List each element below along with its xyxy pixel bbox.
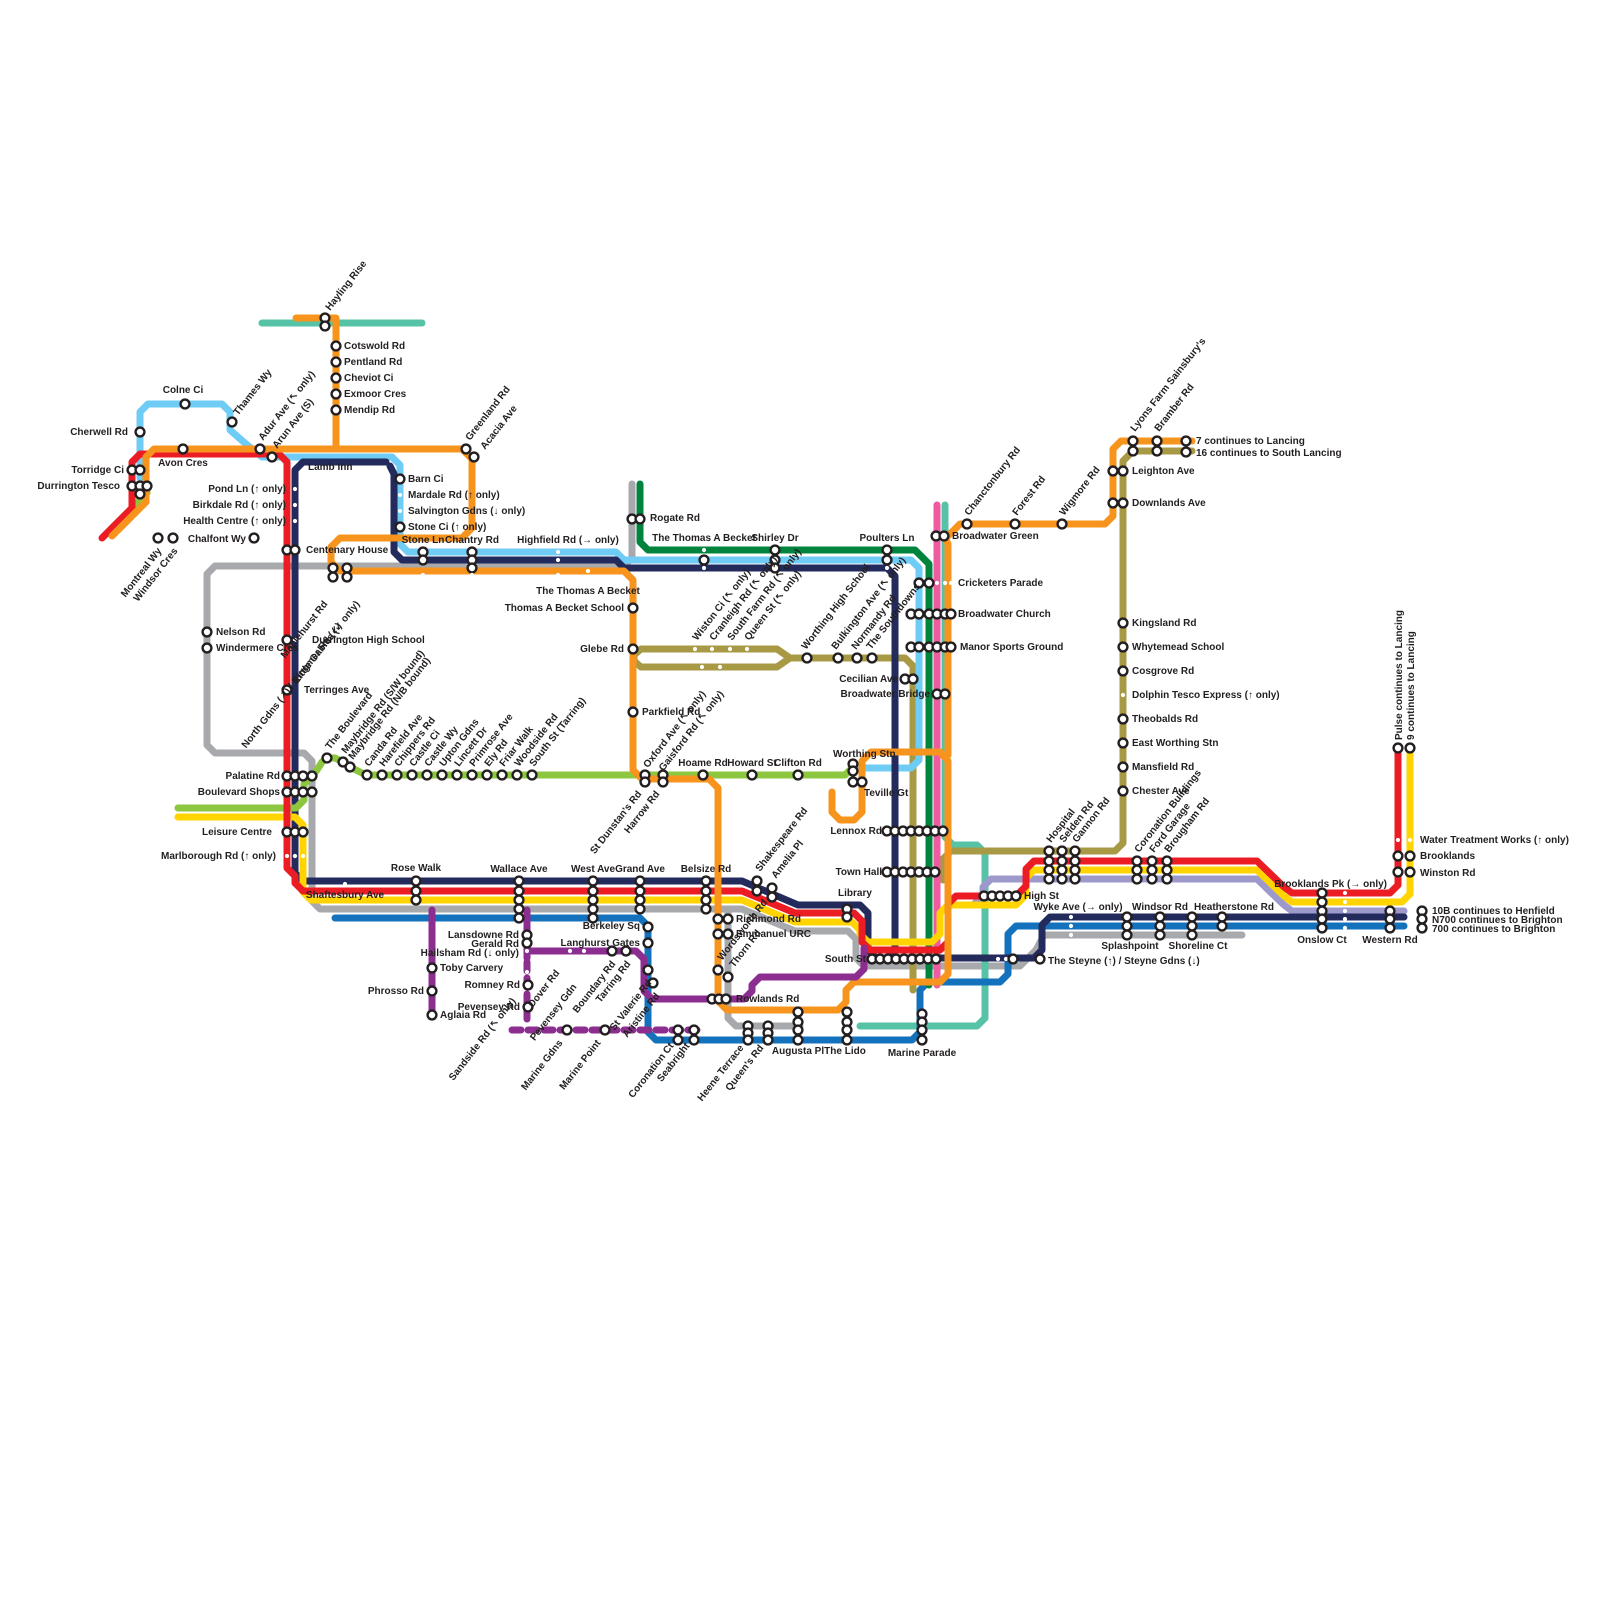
- station-dot-stone-ci-only: [396, 523, 405, 532]
- minor-stop-dot-marlborough-rd-only: [285, 854, 289, 858]
- minor-stop-dot-sandside-rd-only: [525, 970, 529, 974]
- station-dot-montreal-wy: [154, 534, 163, 543]
- minor-stop-dot-pond-ln-only: [293, 487, 297, 491]
- station-dot-teville-gt: [849, 778, 858, 787]
- station-dot-wallace-ave: [515, 914, 524, 923]
- station-dot-shoreline-ct: [1188, 922, 1197, 931]
- minor-stop-dot-brooklands-pk-only: [1343, 917, 1347, 921]
- minor-stop-dot-wiston-ci-only: [693, 647, 697, 651]
- station-dot-hospital: [1045, 857, 1054, 866]
- station-dot-bramber-rd: [1153, 437, 1162, 446]
- station-dot-south-st-tarring: [528, 771, 537, 780]
- minor-stop-dot-the-thomas-a-becket: [702, 548, 706, 552]
- station-dot-hayling-rise: [321, 322, 330, 331]
- station-label-terringes-ave: Terringes Ave: [304, 685, 370, 696]
- station-dot-mansfield-rd: [1119, 763, 1128, 772]
- station-label-chantry-rd: Chantry Rd: [445, 535, 499, 546]
- station-label-broadwater-church: Broadwater Church: [958, 609, 1051, 620]
- minor-stop-dot-chantry-rd: [470, 573, 474, 577]
- station-label-theobalds-rd: Theobalds Rd: [1132, 714, 1198, 725]
- station-label-centenary-house: Centenary House: [306, 545, 389, 556]
- station-dot-broadwater-bridge: [941, 690, 950, 699]
- station-dot-glebe-rd: [629, 645, 638, 654]
- station-label-stone-ln: Stone Ln: [402, 535, 445, 546]
- station-dot-richmond-rd: [714, 915, 723, 924]
- station-label-clifton-rd: Clifton Rd: [774, 758, 822, 769]
- station-dot-brooklands: [1394, 852, 1403, 861]
- station-dot-rogate-rd: [636, 515, 645, 524]
- station-dot-maybridge-rd-n-b-bound: [346, 763, 355, 772]
- station-dot-coronation-buildings: [1133, 866, 1142, 875]
- station-dot-rose-walk: [412, 887, 421, 896]
- station-dot-acacia-ave: [470, 453, 479, 462]
- station-dot-gannon-rd: [1071, 857, 1080, 866]
- station-label-west-ave: West Ave: [571, 864, 616, 875]
- minor-stop-dot-health-centre-only: [293, 519, 297, 523]
- minor-stop-dot-marlborough-rd-only: [293, 854, 297, 858]
- station-dot-splashpoint: [1123, 913, 1132, 922]
- station-label-grand-ave: Grand Ave: [615, 864, 665, 875]
- station-label-brooklands: Brooklands: [1420, 851, 1475, 862]
- station-label-broadwater-green: Broadwater Green: [952, 531, 1039, 542]
- minor-stop-dot-brooklands-pk-only: [1343, 909, 1347, 913]
- minor-stop-dot-south-farm-rd-only: [728, 647, 732, 651]
- station-label-rogate-rd: Rogate Rd: [650, 513, 700, 524]
- station-label-splashpoint: Splashpoint: [1101, 941, 1159, 952]
- station-dot-east-worthing-stn: [1119, 739, 1128, 748]
- station-dot-colne-ci: [181, 400, 190, 409]
- station-dot-nelson-rd: [203, 628, 212, 637]
- station-dot-st-dunstan-s-rd: [641, 778, 650, 787]
- station-dot-emmanuel-urc: [714, 930, 723, 939]
- station-label-chalfont-wy: Chalfont Wy: [188, 534, 247, 545]
- station-dot-high-st: [1012, 892, 1021, 901]
- station-dot-the-lido: [843, 1008, 852, 1017]
- station-dot-castle-wy: [423, 771, 432, 780]
- station-dot-amelia-pl: [768, 893, 777, 902]
- station-dot-cherwell-rd: [136, 428, 145, 437]
- station-label-16-continues-to-south-lancing: 16 continues to South Lancing: [1196, 448, 1342, 459]
- station-label-pulse-continues-to-lancing: Pulse continues to Lancing: [1394, 610, 1405, 740]
- station-dot-belsize-rd: [702, 877, 711, 886]
- station-label-langhurst-gates: Langhurst Gates: [561, 938, 641, 949]
- station-dot-thomas-a-becket-school: [629, 604, 638, 613]
- station-dot-coronation-buildings: [1133, 857, 1142, 866]
- station-dot-chantry-rd: [468, 564, 477, 573]
- station-label-avon-cres: Avon Cres: [158, 458, 208, 469]
- station-label-leighton-ave: Leighton Ave: [1132, 466, 1195, 477]
- station-label-south-st: South St: [825, 954, 867, 965]
- station-label-augusta-pl: Augusta Pl: [772, 1046, 824, 1057]
- station-dot-castle-ci: [408, 771, 417, 780]
- station-dot-windsor-cres: [169, 534, 178, 543]
- station-dot-south-st: [932, 955, 941, 964]
- station-dot-palatine-rd: [299, 772, 308, 781]
- station-dot-grand-ave: [636, 905, 645, 914]
- station-dot-windsor-rd: [1156, 931, 1165, 940]
- map-background: [0, 0, 1600, 1600]
- station-dot-centenary-house: [291, 546, 300, 555]
- station-label-the-thomas-a-becket: The Thomas A Becket: [536, 586, 640, 597]
- station-dot-manor-sports-ground: [947, 643, 956, 652]
- minor-stop-dot-cranleigh-rd-only: [710, 647, 714, 651]
- station-label-belsize-rd: Belsize Rd: [681, 864, 732, 875]
- minor-stop-dot-water-treatment-works-only: [1396, 838, 1400, 842]
- station-dot-bramber-rd: [1153, 447, 1162, 456]
- station-dot-onslow-ct: [1318, 924, 1327, 933]
- station-label-poulters-ln: Poulters Ln: [859, 533, 914, 544]
- station-dot-chalfont-wy: [250, 534, 259, 543]
- station-dot-friar-walk: [498, 771, 507, 780]
- station-label-marine-parade: Marine Parade: [888, 1048, 957, 1059]
- station-dot-bulkington-ave-only: [834, 654, 843, 663]
- station-label-durrington-high-school: Durrington High School: [312, 635, 425, 646]
- minor-stop-dot-water-treatment-works-only: [1408, 838, 1412, 842]
- minor-stop-dot-marlborough-rd-only: [301, 854, 305, 858]
- station-dot-brooklands: [1406, 852, 1415, 861]
- station-label-palatine-rd: Palatine Rd: [226, 771, 280, 782]
- minor-stop-dot-brooklands-pk-only: [1343, 926, 1347, 930]
- station-dot-harrow-rd: [659, 778, 668, 787]
- station-label-lamb-inn: Lamb Inn: [308, 462, 352, 473]
- station-dot-berkeley-sq: [644, 923, 653, 932]
- station-dot-winston-rd: [1394, 868, 1403, 877]
- station-dot-9-continues-to-lancing: [1406, 744, 1415, 753]
- station-label-marlborough-rd-only: Marlborough Rd (↑ only): [161, 851, 276, 862]
- minor-stop-dot-wyke-ave-only: [1069, 924, 1073, 928]
- station-dot-lennox-rd: [939, 827, 948, 836]
- station-dot-broadwater-church: [947, 610, 956, 619]
- station-label-water-treatment-works-only: Water Treatment Works (↑ only): [1420, 835, 1569, 846]
- station-label-berkeley-sq: Berkeley Sq: [583, 921, 640, 932]
- station-dot-rose-walk: [412, 896, 421, 905]
- station-label-teville-gt: Teville Gt: [864, 788, 909, 799]
- station-dot-marine-parade: [918, 1026, 927, 1035]
- station-dot-clifton-rd: [794, 771, 803, 780]
- station-dot-onslow-ct: [1318, 898, 1327, 907]
- station-label-east-worthing-stn: East Worthing Stn: [1132, 738, 1218, 749]
- station-dot-maplehurst-rd: [329, 573, 338, 582]
- station-label-leisure-centre: Leisure Centre: [202, 827, 272, 838]
- station-dot-brougham-rd: [1163, 866, 1172, 875]
- station-dot-the-boulevard: [323, 754, 332, 763]
- minor-stop-dot-stone-ln: [421, 573, 425, 577]
- station-dot-belsize-rd: [702, 896, 711, 905]
- station-label-the-thomas-a-becket: The Thomas A Becket: [652, 533, 756, 544]
- station-label-onslow-ct: Onslow Ct: [1297, 935, 1347, 946]
- station-dot-700-continues-to-brighton: [1418, 924, 1427, 933]
- station-label-mendip-rd: Mendip Rd: [344, 405, 395, 416]
- station-dot-downlands-ave: [1109, 499, 1118, 508]
- station-label-cherwell-rd: Cherwell Rd: [70, 427, 128, 438]
- station-dot-ely-rd: [483, 771, 492, 780]
- station-dot-richmond-rd: [724, 915, 733, 924]
- station-dot-romney-rd: [524, 981, 533, 990]
- station-label-stone-ci-only: Stone Ci (↑ only): [408, 522, 486, 533]
- station-label-highfield-rd-only: Highfield Rd (→ only): [517, 535, 619, 546]
- station-dot-wallace-ave: [515, 887, 524, 896]
- station-label-high-st: High St: [1024, 891, 1060, 902]
- station-label-wyke-ave-only: Wyke Ave (→ only): [1033, 902, 1122, 913]
- station-dot-gerald-rd: [523, 939, 532, 948]
- station-dot-lyons-farm-sainsbury-s: [1129, 447, 1138, 456]
- minor-stop-dot-highfield-rd-only: [556, 573, 560, 577]
- station-dot-chanctonbury-rd: [963, 520, 972, 529]
- station-dot-grand-ave: [636, 896, 645, 905]
- station-dot-durrington-tesco: [143, 482, 152, 491]
- station-dot-shakespeare-rd: [753, 877, 762, 886]
- station-dot-greenland-rd: [462, 445, 471, 454]
- station-label-winston-rd: Winston Rd: [1420, 868, 1475, 879]
- station-dot-seabright: [690, 1026, 699, 1035]
- minor-stop-dot-wyke-ave-only: [1069, 915, 1073, 919]
- station-dot-lyons-farm-sainsbury-s: [1129, 437, 1138, 446]
- station-label-broadwater-bridge: Broadwater Bridge: [841, 689, 931, 700]
- station-dot-little-gables-only: [343, 573, 352, 582]
- station-dot-west-ave: [589, 877, 598, 886]
- station-dot-gannon-rd: [1071, 875, 1080, 884]
- station-dot-phrosso-rd: [428, 987, 437, 996]
- station-dot-theobalds-rd: [1119, 715, 1128, 724]
- station-label-dolphin-tesco-express-only: Dolphin Tesco Express (↑ only): [1132, 690, 1280, 701]
- station-label-700-continues-to-brighton: 700 continues to Brighton: [1432, 924, 1555, 935]
- station-dot-augusta-pl: [794, 1026, 803, 1035]
- station-dot-wigmore-rd: [1058, 520, 1067, 529]
- station-label-salvington-gdns-only: Salvington Gdns (↓ only): [408, 506, 525, 517]
- station-dot-brougham-rd: [1163, 875, 1172, 884]
- station-dot-wallace-ave: [515, 896, 524, 905]
- station-label-shaftesbury-ave: Shaftesbury Ave: [306, 890, 385, 901]
- station-dot-torridge-ci: [136, 466, 145, 475]
- station-dot-cosgrove-rd: [1119, 667, 1128, 676]
- station-label-mansfield-rd: Mansfield Rd: [1132, 762, 1194, 773]
- station-dot-windsor-rd: [1156, 922, 1165, 931]
- station-dot-downlands-ave: [1119, 499, 1128, 508]
- minor-stop-dot-queen-st-only: [745, 647, 749, 651]
- minor-stop-dot-dover-rd: [568, 949, 572, 953]
- minor-stop-dot-wyke-ave-only: [1069, 933, 1073, 937]
- station-label-romney-rd: Romney Rd: [464, 980, 520, 991]
- minor-stop-dot-shaftesbury-ave: [343, 882, 347, 886]
- station-dot-st-valerie-rd: [644, 966, 653, 975]
- station-dot-leisure-centre: [299, 828, 308, 837]
- station-label-cheviot-ci: Cheviot Ci: [344, 373, 394, 384]
- station-dot-queen-s-rd: [764, 1036, 773, 1045]
- station-dot-worthing-stn: [849, 767, 858, 776]
- minor-stop-dot-oxford-ave-only: [700, 665, 704, 669]
- station-dot-leighton-ave: [1119, 467, 1128, 476]
- station-dot-wordsworth-rd: [714, 966, 723, 975]
- station-label-wallace-ave: Wallace Ave: [490, 864, 548, 875]
- station-dot-worthing-high-school: [803, 654, 812, 663]
- station-dot-chippers-rd: [393, 771, 402, 780]
- station-dot-boulevard-shops: [299, 788, 308, 797]
- station-label-colne-ci: Colne Ci: [163, 385, 204, 396]
- station-dot-shoreline-ct: [1188, 931, 1197, 940]
- station-dot-palatine-rd: [308, 772, 317, 781]
- station-dot-marine-gdns: [563, 1026, 572, 1035]
- station-label-shoreline-ct: Shoreline Ct: [1169, 941, 1229, 952]
- station-dot-boulevard-shops: [308, 788, 317, 797]
- minor-stop-dot-cricketers-parade: [935, 581, 939, 585]
- station-label-windermere-cres: Windermere Cres: [216, 643, 299, 654]
- station-dot-the-thomas-a-becket: [700, 556, 709, 565]
- station-dot-western-rd: [1386, 915, 1395, 924]
- station-label-hoame-rd: Hoame Rd: [678, 758, 727, 769]
- station-label-phrosso-rd: Phrosso Rd: [368, 986, 424, 997]
- station-dot-parkfield-rd: [629, 708, 638, 717]
- station-dot-ford-garage: [1148, 857, 1157, 866]
- station-dot-avon-cres: [179, 445, 188, 454]
- station-dot-toby-carvery: [428, 964, 437, 973]
- station-dot-grand-ave: [636, 887, 645, 896]
- station-label-birkdale-rd-only: Birkdale Rd (↑ only): [193, 500, 286, 511]
- station-dot-splashpoint: [1123, 922, 1132, 931]
- station-dot-cricketers-parade: [925, 579, 934, 588]
- station-dot-heatherstone-rd: [1218, 913, 1227, 922]
- station-dot-heene-terrace: [744, 1036, 753, 1045]
- station-dot-seabright: [690, 1036, 699, 1045]
- station-label-glebe-rd: Glebe Rd: [580, 644, 624, 655]
- station-dot-aglaia-rd: [428, 1011, 437, 1020]
- station-dot-west-ave: [589, 887, 598, 896]
- minor-stop-dot-highfield-rd-only: [556, 558, 560, 562]
- station-dot-onslow-ct: [1318, 915, 1327, 924]
- transit-map-page: Hayling RiseCotswold RdPentland RdChevio…: [0, 0, 1600, 1600]
- station-label-cosgrove-rd: Cosgrove Rd: [1132, 666, 1194, 677]
- minor-stop-dot-hailsham-rd-only: [525, 949, 529, 953]
- station-dot-the-southdowns: [868, 654, 877, 663]
- station-dot-rowlands-rd: [722, 995, 731, 1004]
- station-dot-marine-parade: [918, 1036, 927, 1045]
- station-dot-chester-ave: [1119, 787, 1128, 796]
- station-label-the-steyne-steyne-gdns: The Steyne (↑) / Steyne Gdns (↓): [1048, 956, 1200, 967]
- station-dot-selden-rd: [1058, 875, 1067, 884]
- station-dot-langhurst-gates: [644, 939, 653, 948]
- station-dot-belsize-rd: [702, 887, 711, 896]
- station-label-durrington-tesco: Durrington Tesco: [37, 481, 120, 492]
- station-dot-normandy-rd: [853, 654, 862, 663]
- minor-stop-dot-cricketers-parade: [949, 581, 953, 585]
- station-label-rowlands-rd: Rowlands Rd: [736, 994, 799, 1005]
- station-dot-windsor-rd: [1156, 913, 1165, 922]
- station-dot-woodside-rd: [513, 771, 522, 780]
- station-dot-exmoor-cres: [332, 390, 341, 399]
- station-label-lennox-rd: Lennox Rd: [830, 826, 882, 837]
- station-dot-broadwater-green: [940, 532, 949, 541]
- station-dot-16-continues-to-south-lancing: [1182, 448, 1191, 457]
- station-dot-the-lido: [843, 1036, 852, 1045]
- station-dot-maplehurst-rd: [329, 564, 338, 573]
- station-dot-broadwater-church: [915, 610, 924, 619]
- station-label-barn-ci: Barn Ci: [408, 474, 444, 485]
- station-label-boulevard-shops: Boulevard Shops: [198, 787, 281, 798]
- station-label-manor-sports-ground: Manor Sports Ground: [960, 642, 1063, 653]
- station-dot-west-ave: [589, 905, 598, 914]
- station-dot-durrington-tesco: [136, 490, 145, 499]
- station-dot-ford-garage: [1148, 866, 1157, 875]
- station-label-mardale-rd-only: Mardale Rd (↑ only): [408, 490, 500, 501]
- station-dot-primrose-ave: [468, 771, 477, 780]
- station-dot-cheviot-ci: [332, 374, 341, 383]
- station-dot-hoame-rd: [699, 771, 708, 780]
- station-dot-little-gables-only: [343, 564, 352, 573]
- station-dot-brougham-rd: [1163, 857, 1172, 866]
- station-dot-winston-rd: [1406, 868, 1415, 877]
- station-dot-stone-ln: [419, 556, 428, 565]
- station-dot-harefield-ave: [378, 771, 387, 780]
- station-dot-grand-ave: [636, 877, 645, 886]
- station-label-shirley-dr: Shirley Dr: [751, 533, 798, 544]
- station-label-nelson-rd: Nelson Rd: [216, 627, 265, 638]
- minor-stop-dot-highfield-rd-only: [556, 550, 560, 554]
- station-dot-wallace-ave: [515, 905, 524, 914]
- station-dot-poulters-ln: [883, 556, 892, 565]
- station-dot-forest-rd: [1011, 520, 1020, 529]
- station-dot-splashpoint: [1123, 931, 1132, 940]
- station-label-health-centre-only: Health Centre (↑ only): [183, 516, 286, 527]
- station-label-torridge-ci: Torridge Ci: [71, 465, 124, 476]
- station-label-aglaia-rd: Aglaia Rd: [440, 1010, 486, 1021]
- station-dot-belsize-rd: [702, 905, 711, 914]
- station-dot-gannon-rd: [1071, 847, 1080, 856]
- station-label-pond-ln-only: Pond Ln (↑ only): [208, 484, 286, 495]
- station-dot-pulse-continues-to-lancing: [1394, 744, 1403, 753]
- station-label-library: Library: [838, 888, 872, 899]
- minor-stop-dot-the-thomas-a-becket: [702, 566, 706, 570]
- station-dot-gannon-rd: [1071, 866, 1080, 875]
- station-label-kingsland-rd: Kingsland Rd: [1132, 618, 1196, 629]
- station-dot-howard-st: [748, 771, 757, 780]
- station-dot-coronation-buildings: [1133, 875, 1142, 884]
- station-dot-selden-rd: [1058, 857, 1067, 866]
- station-label-western-rd: Western Rd: [1362, 935, 1417, 946]
- station-dot-augusta-pl: [794, 1036, 803, 1045]
- station-label-cricketers-parade: Cricketers Parade: [958, 578, 1043, 589]
- station-dot-adur-ave-only: [256, 445, 265, 454]
- station-dot-manor-sports-ground: [915, 643, 924, 652]
- station-label-rose-walk: Rose Walk: [391, 863, 442, 874]
- station-dot-windermere-cres: [203, 644, 212, 653]
- station-dot-cecilian-ave: [909, 675, 918, 684]
- station-dot-pentland-rd: [332, 358, 341, 367]
- station-dot-western-rd: [1386, 924, 1395, 933]
- minor-stop-dot-cricketers-parade: [943, 581, 947, 585]
- station-dot-cotswold-rd: [332, 342, 341, 351]
- station-dot-the-steyne-steyne-gdns: [1009, 955, 1018, 964]
- station-dot-mendip-rd: [332, 406, 341, 415]
- station-dot-hospital: [1045, 875, 1054, 884]
- station-label-toby-carvery: Toby Carvery: [440, 963, 504, 974]
- minor-stop-dot-the-steyne-steyne-gdns: [996, 957, 1000, 961]
- station-dot-town-hall: [931, 868, 940, 877]
- station-dot-library: [843, 913, 852, 922]
- station-label-windsor-rd: Windsor Rd: [1132, 902, 1188, 913]
- station-dot-poulters-ln: [883, 546, 892, 555]
- station-label-heatherstone-rd: Heatherstone Rd: [1194, 902, 1274, 913]
- station-dot-hospital: [1045, 847, 1054, 856]
- station-dot-upton-gdns: [438, 771, 447, 780]
- station-dot-thorn-rd: [724, 973, 733, 982]
- station-label-cotswold-rd: Cotswold Rd: [344, 341, 405, 352]
- minor-stop-dot-dolphin-tesco-express-only: [1121, 693, 1125, 697]
- station-dot-teville-gt: [858, 778, 867, 787]
- station-dot-west-ave: [589, 896, 598, 905]
- station-dot-shakespeare-rd: [753, 887, 762, 896]
- station-dot-leighton-ave: [1109, 467, 1118, 476]
- station-label-town-hall: Town Hall: [836, 867, 883, 878]
- station-dot-thames-wy: [228, 418, 237, 427]
